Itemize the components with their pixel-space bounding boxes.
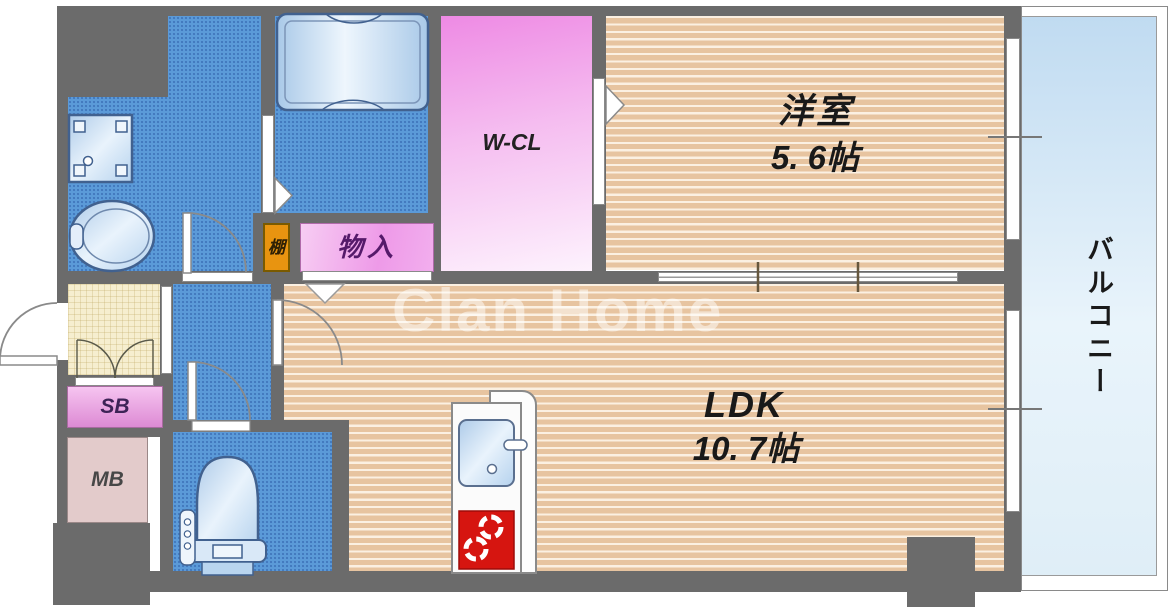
bathtub-icon <box>277 14 428 110</box>
shoebox-doors <box>77 340 153 378</box>
washroom-door <box>183 213 246 273</box>
ldk-size: 10. 7帖 <box>646 432 846 467</box>
ldk-door <box>273 300 342 365</box>
watermark: Clan Home <box>392 276 723 345</box>
western-room-size: 5. 6帖 <box>705 141 925 176</box>
wcl-door-arrow-icon <box>606 86 624 124</box>
washing-machine-pan-icon <box>69 115 132 182</box>
wcl-label: W-CL <box>442 130 582 154</box>
western-room-name: 洋室 <box>736 94 896 131</box>
stove-icon <box>459 511 514 569</box>
bathroom-door-arrow-icon <box>275 178 292 213</box>
kitchen-sink-icon <box>459 420 514 486</box>
floorplan-canvas: 棚 物入 SB MB <box>0 0 1170 611</box>
kitchen-counter-icon <box>452 391 536 573</box>
storage-door-arrow-icon <box>306 284 344 303</box>
toilet-door <box>188 362 250 431</box>
faucet-icon <box>504 440 527 450</box>
ldk-name: LDK <box>664 386 824 424</box>
toilet-icon <box>180 457 266 575</box>
wash-basin-icon <box>70 201 154 271</box>
entrance-door <box>0 303 57 365</box>
balcony-label: バルコニー <box>1062 212 1118 422</box>
